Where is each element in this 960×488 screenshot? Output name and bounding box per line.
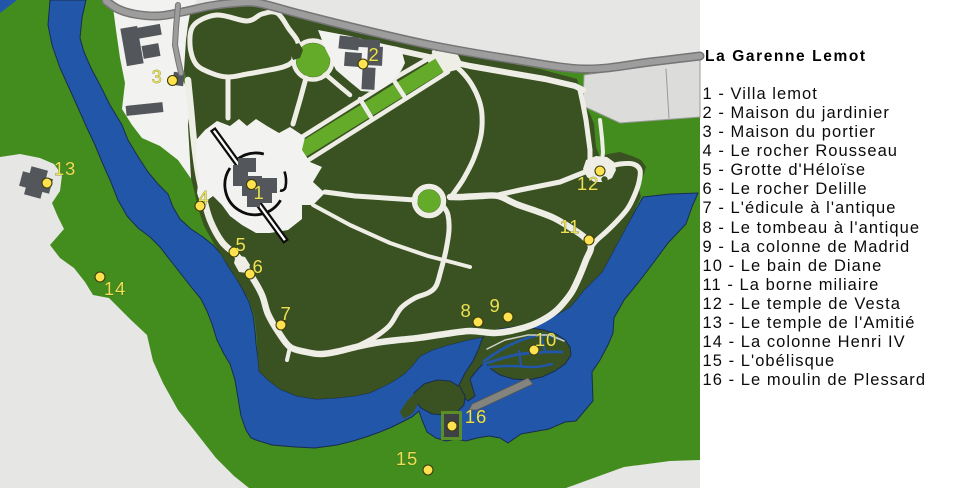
svg-text:1: 1 (253, 182, 264, 203)
svg-text:3: 3 (151, 66, 162, 87)
svg-text:8: 8 (460, 300, 471, 321)
svg-text:14: 14 (104, 278, 126, 299)
svg-text:6: 6 (252, 256, 263, 277)
svg-text:7: 7 (280, 303, 291, 324)
svg-text:12: 12 (577, 173, 599, 194)
svg-text:9: 9 (489, 295, 500, 316)
svg-text:5: 5 (235, 234, 246, 255)
svg-text:10: 10 (535, 329, 557, 350)
svg-text:4: 4 (198, 187, 209, 208)
svg-text:15: 15 (396, 448, 418, 469)
svg-text:13: 13 (54, 158, 76, 179)
svg-text:2: 2 (368, 44, 379, 65)
svg-text:11: 11 (560, 216, 581, 237)
svg-text:16: 16 (465, 406, 487, 427)
